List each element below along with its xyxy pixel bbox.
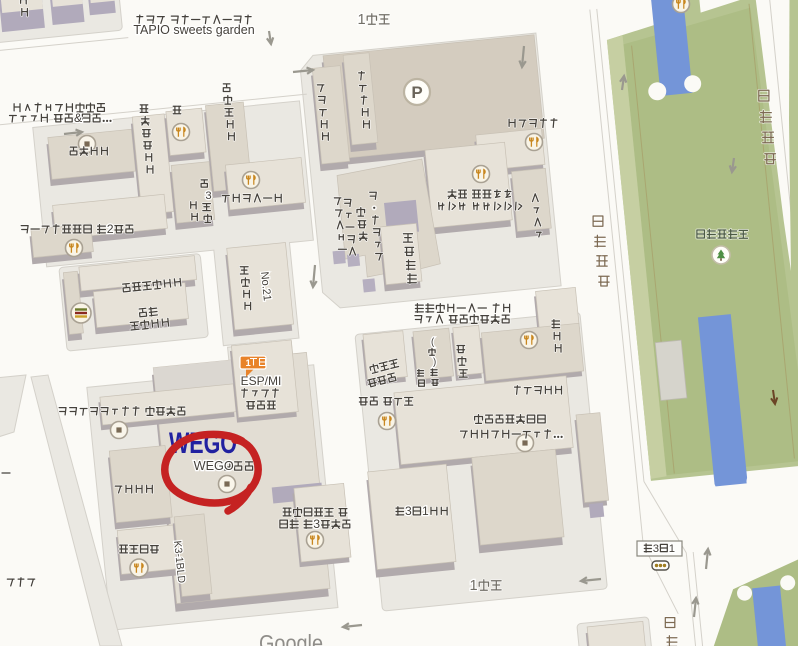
svg-text:3: 3 (205, 190, 211, 202)
svg-text:1: 1 (422, 504, 429, 518)
svg-text:3: 3 (405, 504, 412, 518)
svg-text:3: 3 (653, 543, 659, 555)
svg-text:WEGO: WEGO (194, 459, 234, 473)
svg-text:3: 3 (313, 517, 320, 531)
svg-text:1: 1 (246, 358, 252, 369)
svg-text:): ) (433, 357, 436, 368)
svg-text:1: 1 (669, 543, 675, 555)
svg-text:Google: Google (259, 630, 323, 646)
svg-text:2: 2 (107, 222, 114, 236)
svg-text:P: P (411, 83, 422, 102)
svg-text:&: & (74, 111, 83, 125)
svg-text:1: 1 (358, 12, 366, 28)
svg-text:1: 1 (470, 578, 478, 594)
svg-text:TAPIO sweets garden: TAPIO sweets garden (133, 23, 254, 37)
